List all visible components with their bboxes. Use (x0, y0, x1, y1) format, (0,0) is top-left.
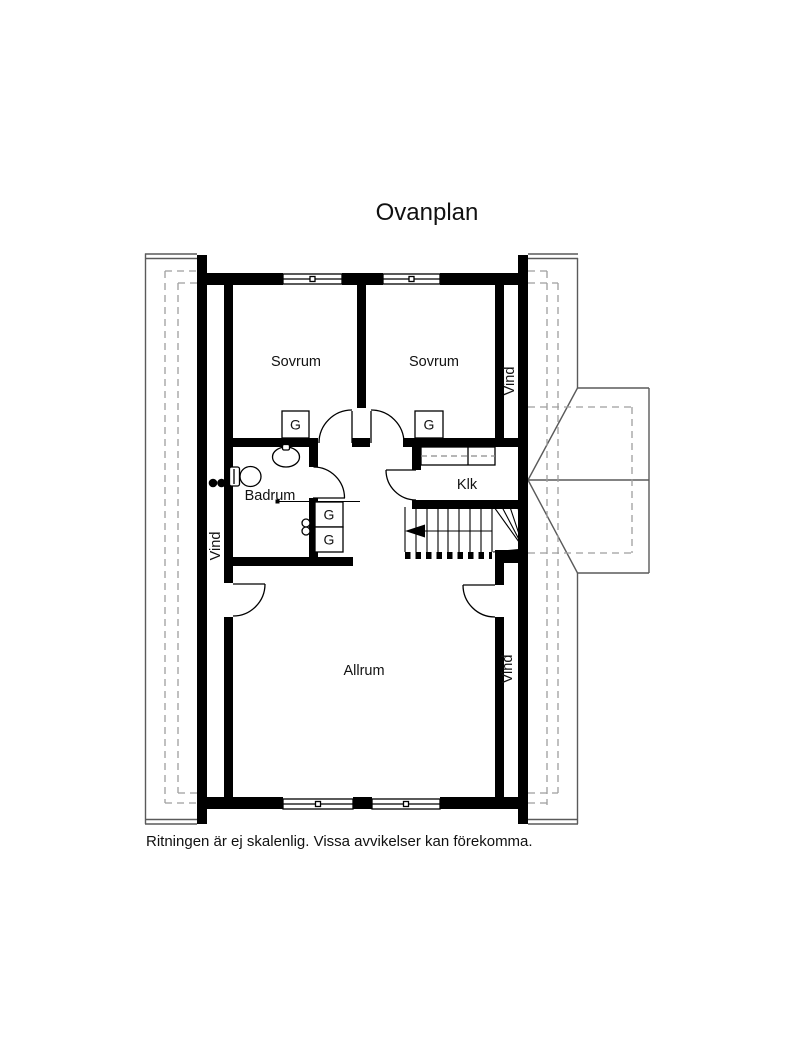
wall-bedrooms-bottom (224, 438, 318, 447)
wall-inner-left (224, 617, 233, 797)
room-label-klk: Klk (457, 477, 478, 493)
wall-bottom (197, 797, 283, 809)
roof-eave-left (145, 254, 197, 825)
door-arc-bedroom-left (319, 410, 352, 443)
wall-inner-right (495, 285, 504, 438)
closet-label: G (290, 417, 301, 433)
room-label-sovrum-left: Sovrum (271, 354, 321, 370)
wall-bottom (440, 797, 528, 809)
door-arc-klk (386, 470, 416, 500)
roof-dashed-left (165, 271, 197, 803)
wall-inner-left (224, 285, 233, 583)
walls (197, 255, 528, 824)
page-title: Ovanplan (376, 199, 479, 226)
room-label-vind-lower-right: Vind (500, 655, 516, 684)
stair-treads (416, 507, 492, 552)
floorplan-drawing: Ovanplan Sovrum Sovrum Vind Badrum Klk V… (0, 0, 800, 1051)
room-label-badrum: Badrum (245, 488, 296, 504)
roof-gable-right (528, 388, 649, 573)
window (372, 799, 440, 809)
roof-eave-right (528, 254, 578, 824)
wall-top (342, 273, 383, 285)
valve-icon (302, 519, 310, 535)
wall-bedroom-divider (357, 285, 366, 408)
wall-bottom (353, 797, 372, 809)
wall-klk-left (412, 438, 421, 470)
door-arc-allrum-left (233, 584, 265, 616)
closet-label: G (324, 532, 335, 548)
wall-inner-right (495, 550, 504, 585)
room-label-vind-left: Vind (208, 532, 224, 561)
wall-top (440, 273, 528, 285)
chimney-dots (209, 479, 226, 488)
toilet-icon (230, 467, 262, 487)
staircase (405, 507, 524, 556)
wall-top (197, 273, 283, 285)
roof-dashed-lines (165, 271, 632, 805)
room-label-sovrum-right: Sovrum (409, 354, 459, 370)
door-arc-bedroom-right (371, 410, 404, 443)
wall-allrum-top (224, 557, 353, 566)
closet-label: G (424, 417, 435, 433)
wall-bedrooms-bottom (352, 438, 370, 447)
wall-bathroom-right (309, 438, 318, 467)
closet-label: G (324, 507, 335, 523)
door-arc-bathroom (313, 467, 345, 498)
roof-dashed-right (528, 271, 558, 805)
disclaimer-note: Ritningen är ej skalenlig. Vissa avvikel… (146, 833, 533, 850)
window (383, 274, 440, 284)
floorplan-page: Ovanplan Sovrum Sovrum Vind Badrum Klk V… (0, 0, 800, 1051)
sink-icon (273, 445, 300, 468)
room-label-allrum: Allrum (343, 663, 384, 679)
window (283, 274, 342, 284)
door-arc-allrum-right (463, 585, 495, 617)
klk-wardrobe (421, 447, 495, 465)
room-label-vind-upper-right: Vind (502, 367, 518, 396)
wall-outer-left (197, 255, 207, 824)
window (283, 799, 353, 809)
wall-inner-right (495, 617, 504, 797)
wall-bedrooms-bottom (403, 438, 528, 447)
